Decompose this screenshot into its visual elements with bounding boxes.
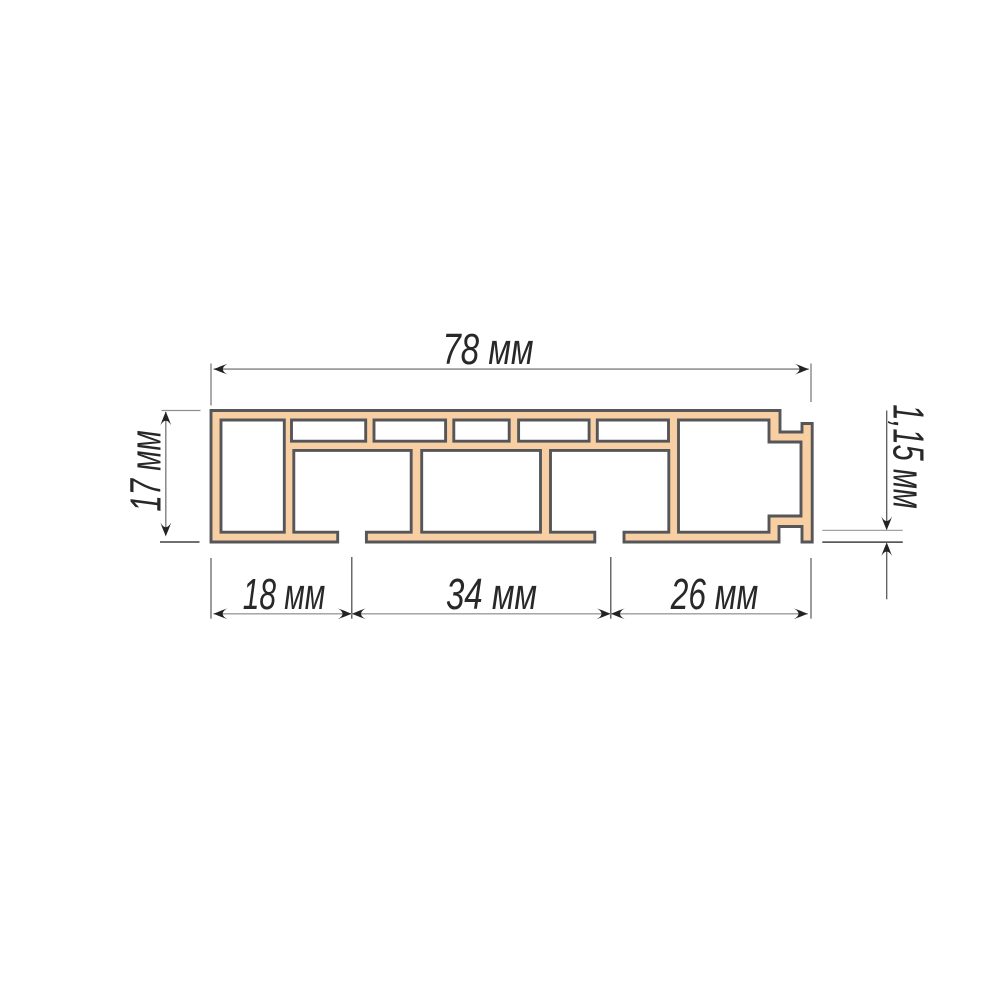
svg-text:18 мм: 18 мм: [243, 569, 326, 618]
svg-text:1,15 мм: 1,15 мм: [884, 404, 934, 508]
svg-text:78 мм: 78 мм: [442, 326, 533, 375]
svg-text:17 мм: 17 мм: [121, 430, 170, 511]
svg-text:34 мм: 34 мм: [446, 571, 537, 620]
svg-text:26 мм: 26 мм: [670, 570, 758, 619]
